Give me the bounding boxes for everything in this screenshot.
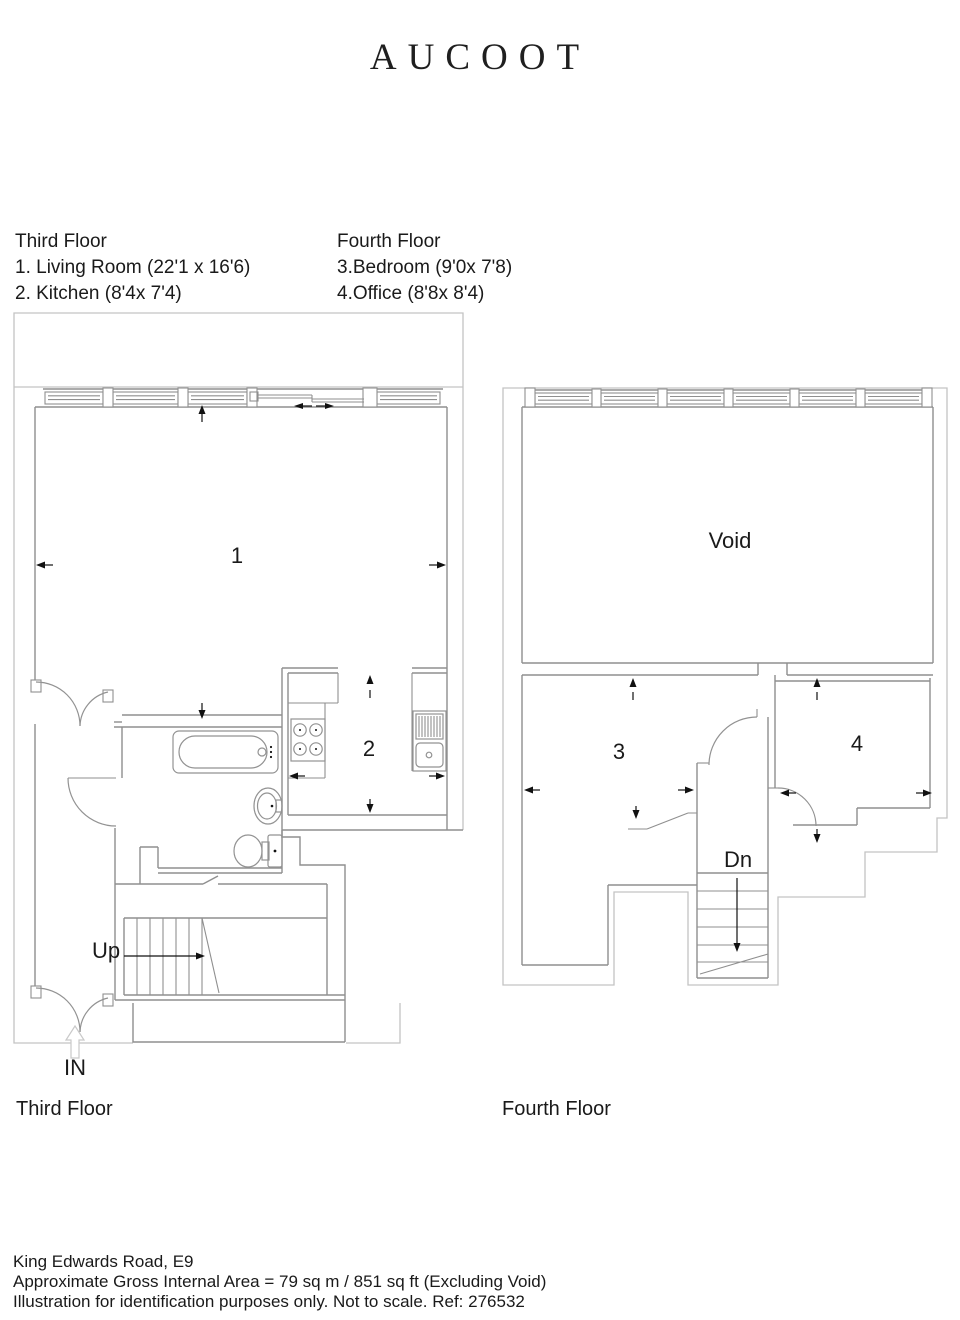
- footer: King Edwards Road, E9 Approximate Gross …: [13, 1252, 546, 1311]
- third-floor-plan: [14, 313, 463, 1058]
- stove: [291, 719, 325, 761]
- third-floor-outer-boundary: [14, 313, 463, 1043]
- fourth-floor-windows: [522, 388, 933, 407]
- fourth-floor-outer-boundary: [503, 388, 947, 985]
- void-label: Void: [709, 528, 752, 554]
- footer-area: Approximate Gross Internal Area = 79 sq …: [13, 1272, 546, 1292]
- bathtub: [173, 731, 278, 773]
- third-floor-windows: [35, 388, 447, 409]
- bedroom-room-number: 3: [613, 739, 625, 765]
- fourth-floor-plan: [503, 388, 947, 985]
- stairs-up-label: Up: [92, 938, 120, 964]
- living-room-number: 1: [231, 543, 243, 569]
- toilet: [234, 835, 282, 867]
- stairs-down-label: Dn: [724, 847, 752, 873]
- fourth-floor-walls: [522, 407, 933, 978]
- washbasin: [254, 788, 282, 824]
- footer-disclaimer: Illustration for identification purposes…: [13, 1292, 546, 1312]
- third-floor-dimension-arrows: [36, 405, 446, 960]
- floorplan-linework: [0, 0, 960, 1320]
- fourth-floor-dimension-arrows: [524, 678, 932, 952]
- fourth-floor-caption: Fourth Floor: [502, 1098, 611, 1121]
- footer-address: King Edwards Road, E9: [13, 1252, 546, 1272]
- entrance-label: IN: [64, 1055, 86, 1081]
- bathroom-fixtures: [173, 731, 282, 867]
- floorplan-page: AUCOOT Third Floor 1. Living Room (22'1 …: [0, 0, 960, 1320]
- third-floor-caption: Third Floor: [16, 1098, 113, 1121]
- kitchen-sink: [413, 711, 446, 771]
- office-room-number: 4: [851, 731, 863, 757]
- kitchen-room-number: 2: [363, 736, 375, 762]
- entrance-arrow-icon: [66, 1026, 84, 1058]
